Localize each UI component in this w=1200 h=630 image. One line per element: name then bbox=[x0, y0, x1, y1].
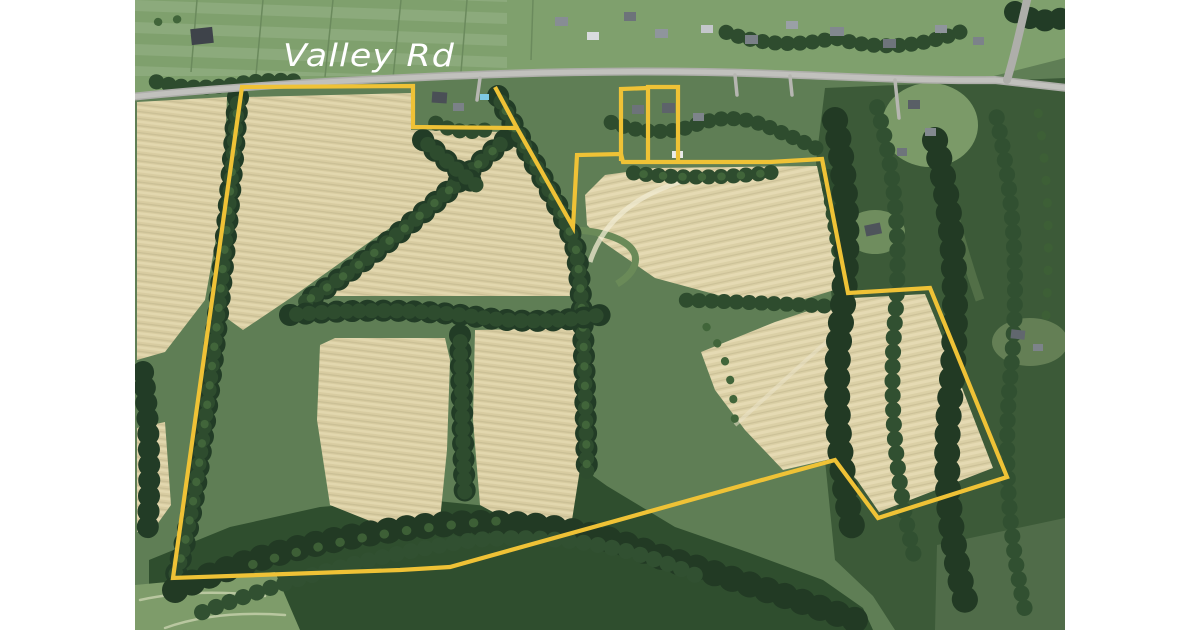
house-roof bbox=[1033, 344, 1043, 351]
house-roof bbox=[908, 100, 920, 109]
house-roof bbox=[662, 103, 675, 113]
house-roof bbox=[701, 25, 713, 33]
house-roof bbox=[745, 35, 758, 44]
driveway bbox=[790, 76, 792, 95]
house-roof bbox=[453, 103, 464, 111]
road-label: Valley Rd bbox=[283, 38, 455, 74]
driveway bbox=[735, 75, 737, 95]
house-roof bbox=[587, 32, 599, 40]
house-roof bbox=[897, 148, 907, 156]
house-roof bbox=[632, 105, 644, 114]
house-roof bbox=[1011, 329, 1026, 339]
house-roof bbox=[655, 29, 668, 38]
house-roof bbox=[973, 37, 984, 45]
house-roof bbox=[786, 21, 798, 29]
house-roof bbox=[935, 25, 947, 33]
house-clearing bbox=[992, 318, 1065, 366]
house-roof bbox=[693, 113, 704, 121]
house-roof bbox=[624, 12, 636, 21]
white-margin-right bbox=[1065, 0, 1200, 630]
aerial-photo: Valley Rd bbox=[135, 0, 1065, 630]
house-roof bbox=[432, 92, 448, 104]
house-roof bbox=[883, 39, 896, 48]
white-margin-left bbox=[0, 0, 135, 630]
house-roof bbox=[925, 128, 936, 136]
barn-roof bbox=[190, 27, 214, 45]
house-roof bbox=[830, 27, 844, 36]
field-central-southwest bbox=[317, 338, 450, 523]
page: Valley Rd bbox=[0, 0, 1200, 630]
house-roof bbox=[555, 17, 568, 26]
swimming-pool bbox=[480, 94, 489, 100]
